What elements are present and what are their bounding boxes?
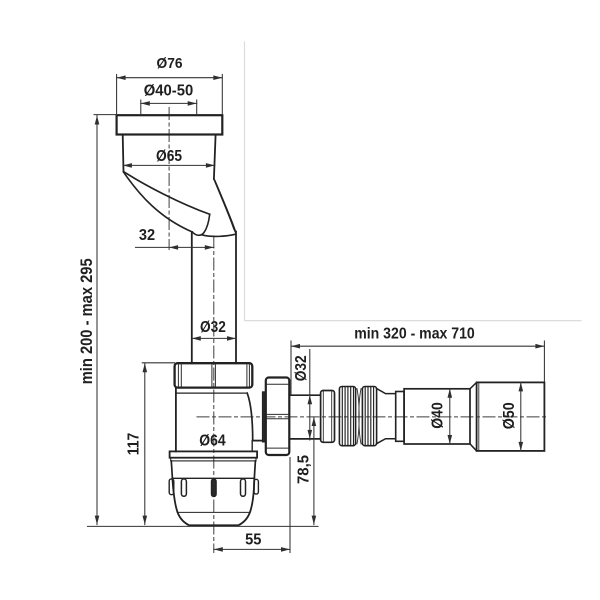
- svg-text:Ø64: Ø64: [199, 432, 225, 449]
- svg-text:32: 32: [139, 227, 155, 244]
- svg-text:55: 55: [245, 532, 261, 549]
- svg-text:Ø40: Ø40: [430, 402, 447, 429]
- svg-text:Ø40-50: Ø40-50: [144, 82, 194, 99]
- svg-text:Ø65: Ø65: [156, 148, 182, 165]
- svg-text:Ø50: Ø50: [501, 402, 518, 429]
- svg-text:Ø76: Ø76: [157, 55, 183, 72]
- svg-text:117: 117: [125, 433, 142, 456]
- svg-text:Ø32: Ø32: [293, 355, 310, 381]
- svg-text:78,5: 78,5: [296, 455, 313, 484]
- svg-text:min 200 - max 295: min 200 - max 295: [77, 258, 96, 384]
- svg-text:min 320 - max 710: min 320 - max 710: [354, 326, 475, 343]
- svg-text:Ø32: Ø32: [200, 319, 226, 336]
